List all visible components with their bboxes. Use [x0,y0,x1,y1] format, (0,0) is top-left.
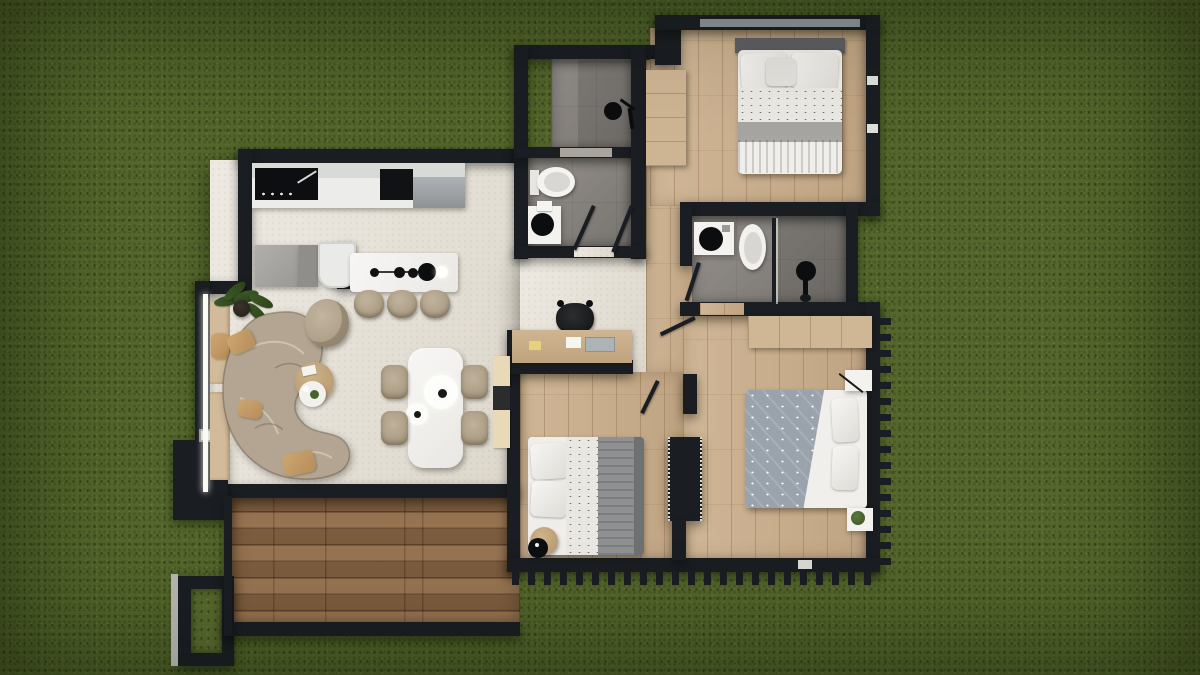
bed2-table-item [528,538,548,558]
pouf-armchair [305,299,349,347]
dining-chair-1 [381,365,408,399]
desk-chair-arm-right [586,300,593,307]
deck-edge-bottom [224,622,520,636]
bed2-table-item-dot [535,543,539,547]
island-faucet [418,263,436,281]
wall-divider-bed2-bed3-low [672,520,686,560]
wall-bath-right [631,45,646,259]
sill-bedroom1-a [867,76,878,85]
planter-frame-curb [171,574,178,666]
desk-laptop [585,337,615,352]
plate-small-center [414,411,421,418]
bed1-blanket-light [738,122,842,142]
media-shelf-mid [493,386,510,410]
bath-door-gap [574,247,614,257]
island-item-1 [370,268,379,277]
shower-head-top [604,102,622,120]
island-item-2 [394,267,405,278]
wall-kitchen-left [238,149,252,291]
desk-chair-arm-left [557,300,564,307]
bed3-pillow-bottom [831,446,859,491]
shower-base-ensuite [800,294,811,302]
bed2-pillow-top [530,442,568,480]
vanity-wc-sink [531,213,554,236]
dining-chair-4 [461,411,488,445]
desk-notepad [529,341,541,350]
kitchen-sink [380,169,413,200]
vanity-ensuite-item [722,225,730,232]
sill-bedrooms-bottom [798,560,812,569]
wardrobe-bedroom1 [646,70,686,166]
media-shelf-bottom [493,410,510,448]
wall-bedrooms-bottom [507,558,880,572]
tray-cup [303,386,309,392]
stud-tabs-right [880,318,891,572]
cooktop-knobs [259,190,293,198]
bed2-duvet [566,437,600,555]
wall-ensuite-left [680,202,692,266]
bed1-sham [766,58,796,86]
wardrobe-divider-strip [668,437,702,521]
window-living-left [203,294,208,492]
bed2-pillow-bottom [530,480,568,518]
wall-kitchen-top [238,149,520,163]
wall-divider-bed2-bed3-top [683,374,697,414]
floor-deck [228,496,520,628]
planter-frame-grass [191,589,222,653]
wall-bedroom1-right [866,15,880,216]
window-bedroom1-top [700,19,860,27]
bar-stool-2 [387,290,417,318]
dining-chair-3 [461,365,488,399]
wardrobe-bedroom3 [748,316,872,348]
bed3-pillow-top [831,397,859,442]
bath-divider-threshold [560,148,612,157]
floor-plan-render [0,0,1200,675]
plate-large-center [438,389,447,398]
desk-paper [566,337,581,348]
bed1-pillow-right [790,52,839,90]
fridge-cabinet-a [255,245,299,287]
shower-zone-ensuite [776,216,846,304]
dining-chair-2 [381,411,408,445]
fridge-cabinet-b [299,245,318,287]
media-shelf-top [493,356,510,386]
vanity-ensuite-sink [699,227,723,251]
island-item-3 [408,268,418,278]
tray-plant [310,390,319,399]
toilet-ensuite-seat [744,232,762,264]
nightstand-plant [851,511,865,525]
shower-head-ensuite [796,261,816,281]
bed2-blanket-edge [634,437,644,555]
wall-ensuite-right [846,202,858,314]
vanity-wc-tray [537,201,552,211]
ensuite-divider-glass [776,218,778,304]
toilet-wc-seat [544,172,570,192]
kitchen-cabinet-gray [413,177,465,208]
island-bowl-white [436,266,448,278]
bed1-duvet [738,88,842,124]
deck-edge-left [224,496,232,636]
bedroom3-door-gap [700,303,744,315]
sill-bedroom1-b [867,124,878,133]
bed1-blanket-dark [738,140,842,173]
stud-tabs-bottom [512,572,880,585]
bar-stool-3 [420,290,450,318]
